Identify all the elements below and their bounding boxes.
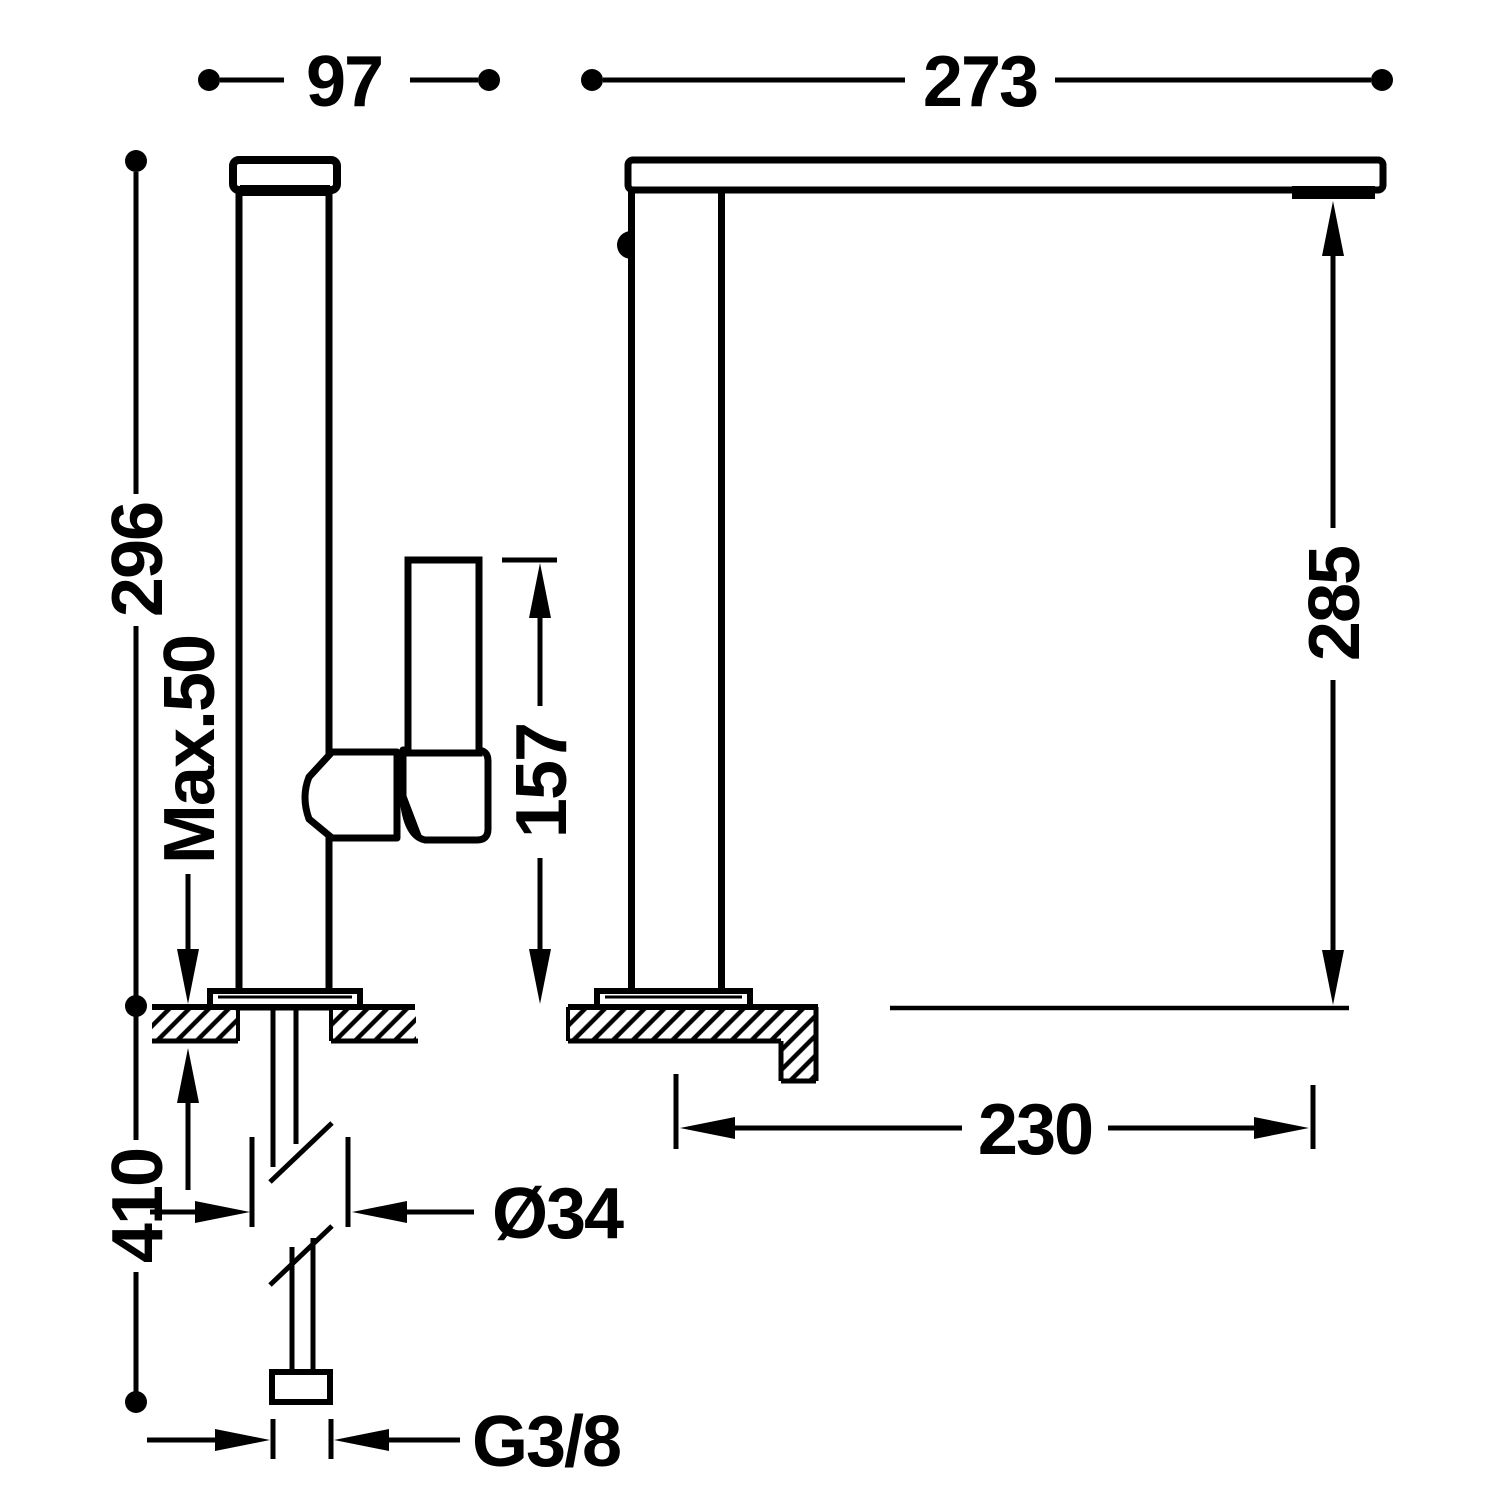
drawing-canvas: 97 273 296 410 Max.50: [0, 0, 1500, 1500]
dim-97-label: 97: [306, 42, 382, 122]
front-cap-band: [240, 185, 330, 196]
dim-dot: [581, 69, 603, 91]
dim-285-label: 285: [1295, 546, 1375, 661]
arrow-up-icon: [177, 1048, 199, 1103]
handle-lever: [408, 560, 479, 753]
dim-157: 157: [502, 560, 582, 1004]
dim-273-label: 273: [923, 42, 1037, 122]
arrow-left-icon: [680, 1117, 735, 1139]
dim-g38: G3/8: [147, 1402, 620, 1482]
dim-97: 97: [198, 42, 500, 122]
dim-max50: Max.50: [150, 636, 230, 1190]
counter-hatch-left: [152, 1007, 238, 1041]
spout-outlet: [1292, 186, 1375, 199]
side-counter-hatch-edge: [781, 1041, 816, 1081]
side-view: [568, 160, 1383, 1081]
dim-dot: [1371, 69, 1393, 91]
arrow-left-icon: [334, 1429, 389, 1451]
dim-dot: [125, 995, 147, 1017]
arrow-right-icon: [1254, 1117, 1309, 1139]
dim-dot: [125, 150, 147, 172]
pipe-break-upper: [270, 1123, 332, 1182]
handle-boss: [305, 752, 397, 838]
arrow-down-icon: [1322, 950, 1344, 1005]
dim-dia34-label: Ø34: [492, 1174, 624, 1254]
dim-dot: [125, 1391, 147, 1413]
side-column-pin: [617, 231, 631, 259]
counter-hatch-right: [331, 1007, 416, 1041]
hose-end-fitting: [272, 1372, 330, 1402]
arrow-up-icon: [529, 563, 551, 618]
dim-dot: [198, 69, 220, 91]
dim-230: 230: [676, 1074, 1313, 1170]
dim-dot: [478, 69, 500, 91]
arrow-down-icon: [177, 949, 199, 1004]
front-column: [239, 192, 329, 1007]
technical-drawing: 97 273 296 410 Max.50: [0, 0, 1500, 1500]
arrow-right-icon: [195, 1201, 250, 1223]
dim-273: 273: [581, 42, 1393, 122]
dim-g38-label: G3/8: [472, 1402, 620, 1482]
dim-410-label: 410: [98, 1149, 178, 1263]
dim-dia34: Ø34: [150, 1137, 624, 1254]
dim-296: 296: [98, 150, 178, 1017]
side-spout: [628, 160, 1383, 190]
arrow-down-icon: [529, 949, 551, 1004]
dim-285: 285: [890, 201, 1375, 1008]
pipe-break-lower: [270, 1226, 332, 1285]
dim-max50-label: Max.50: [150, 636, 230, 864]
arrow-right-icon: [215, 1429, 270, 1451]
arrow-up-icon: [1322, 201, 1344, 256]
dim-157-label: 157: [502, 724, 582, 838]
side-counter-hatch-slab: [568, 1007, 816, 1041]
dim-296-label: 296: [98, 503, 178, 617]
arrow-left-icon: [352, 1201, 407, 1223]
dim-230-label: 230: [978, 1090, 1092, 1170]
